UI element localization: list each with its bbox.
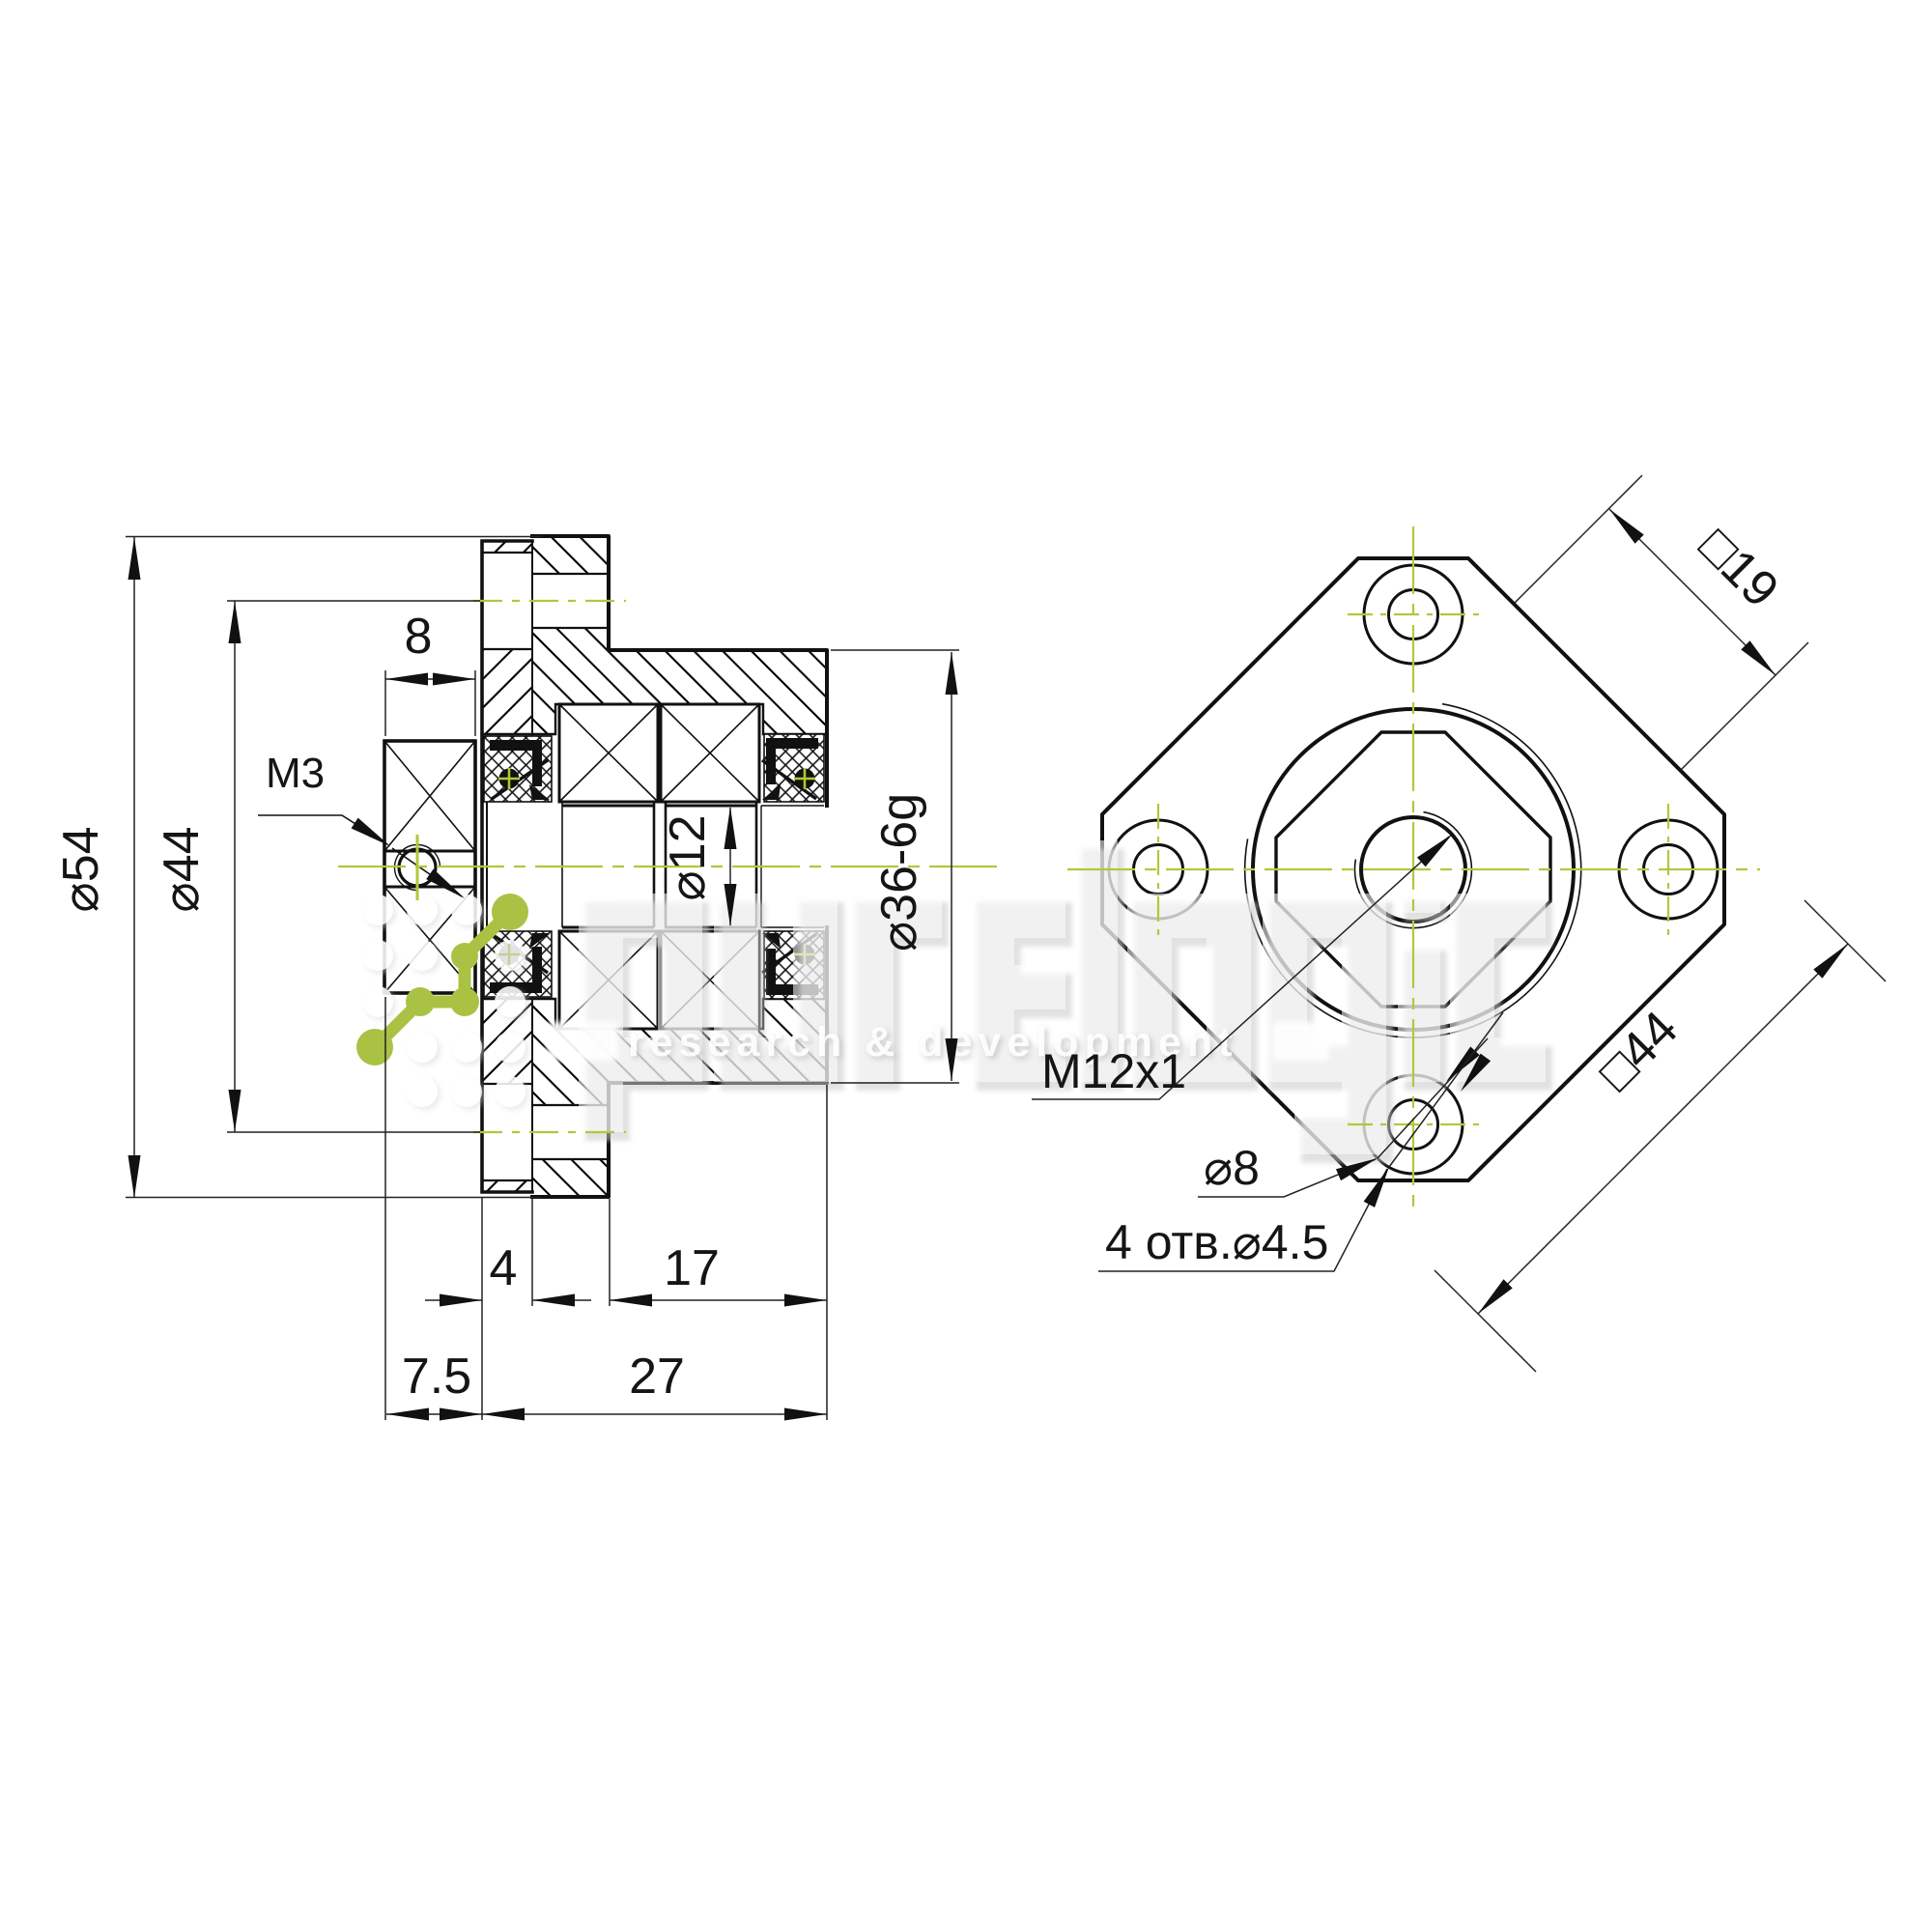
svg-text:⌀44: ⌀44 <box>154 826 210 912</box>
svg-text:4: 4 <box>490 1240 518 1296</box>
svg-text:4 отв.⌀4.5: 4 отв.⌀4.5 <box>1105 1215 1328 1269</box>
svg-text:M12x1: M12x1 <box>1041 1044 1186 1098</box>
svg-text:8: 8 <box>405 609 433 665</box>
svg-text:⌀12: ⌀12 <box>660 814 716 900</box>
svg-text:⌀54: ⌀54 <box>53 826 109 912</box>
svg-text:⌀8: ⌀8 <box>1204 1141 1260 1195</box>
svg-text:27: 27 <box>629 1349 685 1405</box>
svg-text:⌀36-6g: ⌀36-6g <box>871 793 927 952</box>
svg-text:17: 17 <box>664 1240 720 1296</box>
svg-text:7.5: 7.5 <box>402 1349 471 1405</box>
svg-text:M3: M3 <box>266 750 325 797</box>
